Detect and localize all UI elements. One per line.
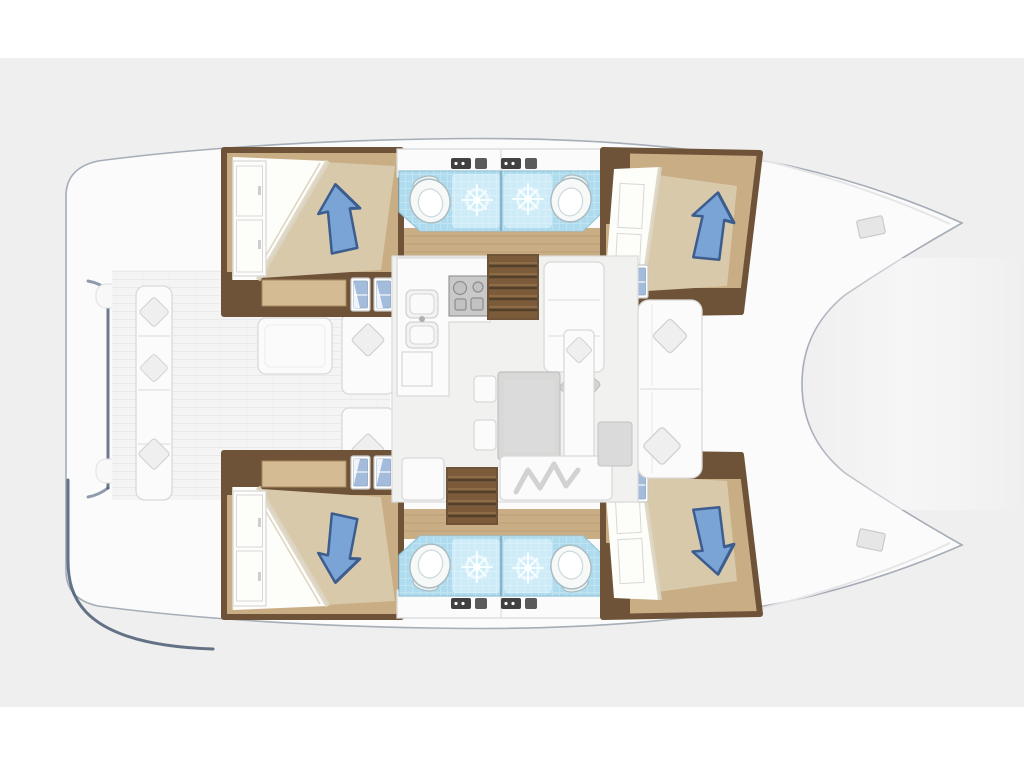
companionway-port bbox=[488, 255, 538, 319]
catamaran-floorplan bbox=[0, 0, 1024, 767]
galley-stove bbox=[449, 276, 489, 316]
companionway-starboard bbox=[447, 468, 497, 524]
nav-seat bbox=[598, 422, 632, 466]
salon-seat bbox=[402, 458, 444, 500]
salon-chair bbox=[474, 376, 496, 402]
cockpit-table bbox=[258, 318, 332, 374]
forward-cockpit bbox=[638, 300, 702, 478]
trampoline-fade bbox=[800, 258, 1024, 510]
galley-cabinet bbox=[402, 352, 432, 386]
salon-chair bbox=[474, 420, 496, 450]
boat-floorplan-page bbox=[0, 0, 1024, 767]
